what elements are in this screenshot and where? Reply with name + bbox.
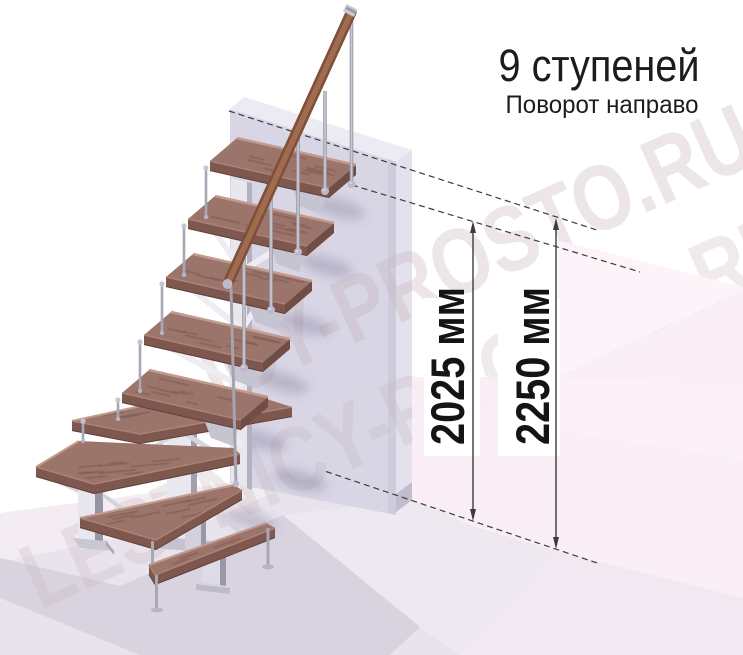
svg-text:Поворот направо: Поворот направо [506, 91, 699, 119]
svg-text:2250 мм: 2250 мм [506, 287, 559, 445]
svg-text:2025 мм: 2025 мм [421, 287, 474, 445]
svg-text:9 ступеней: 9 ступеней [499, 40, 700, 91]
